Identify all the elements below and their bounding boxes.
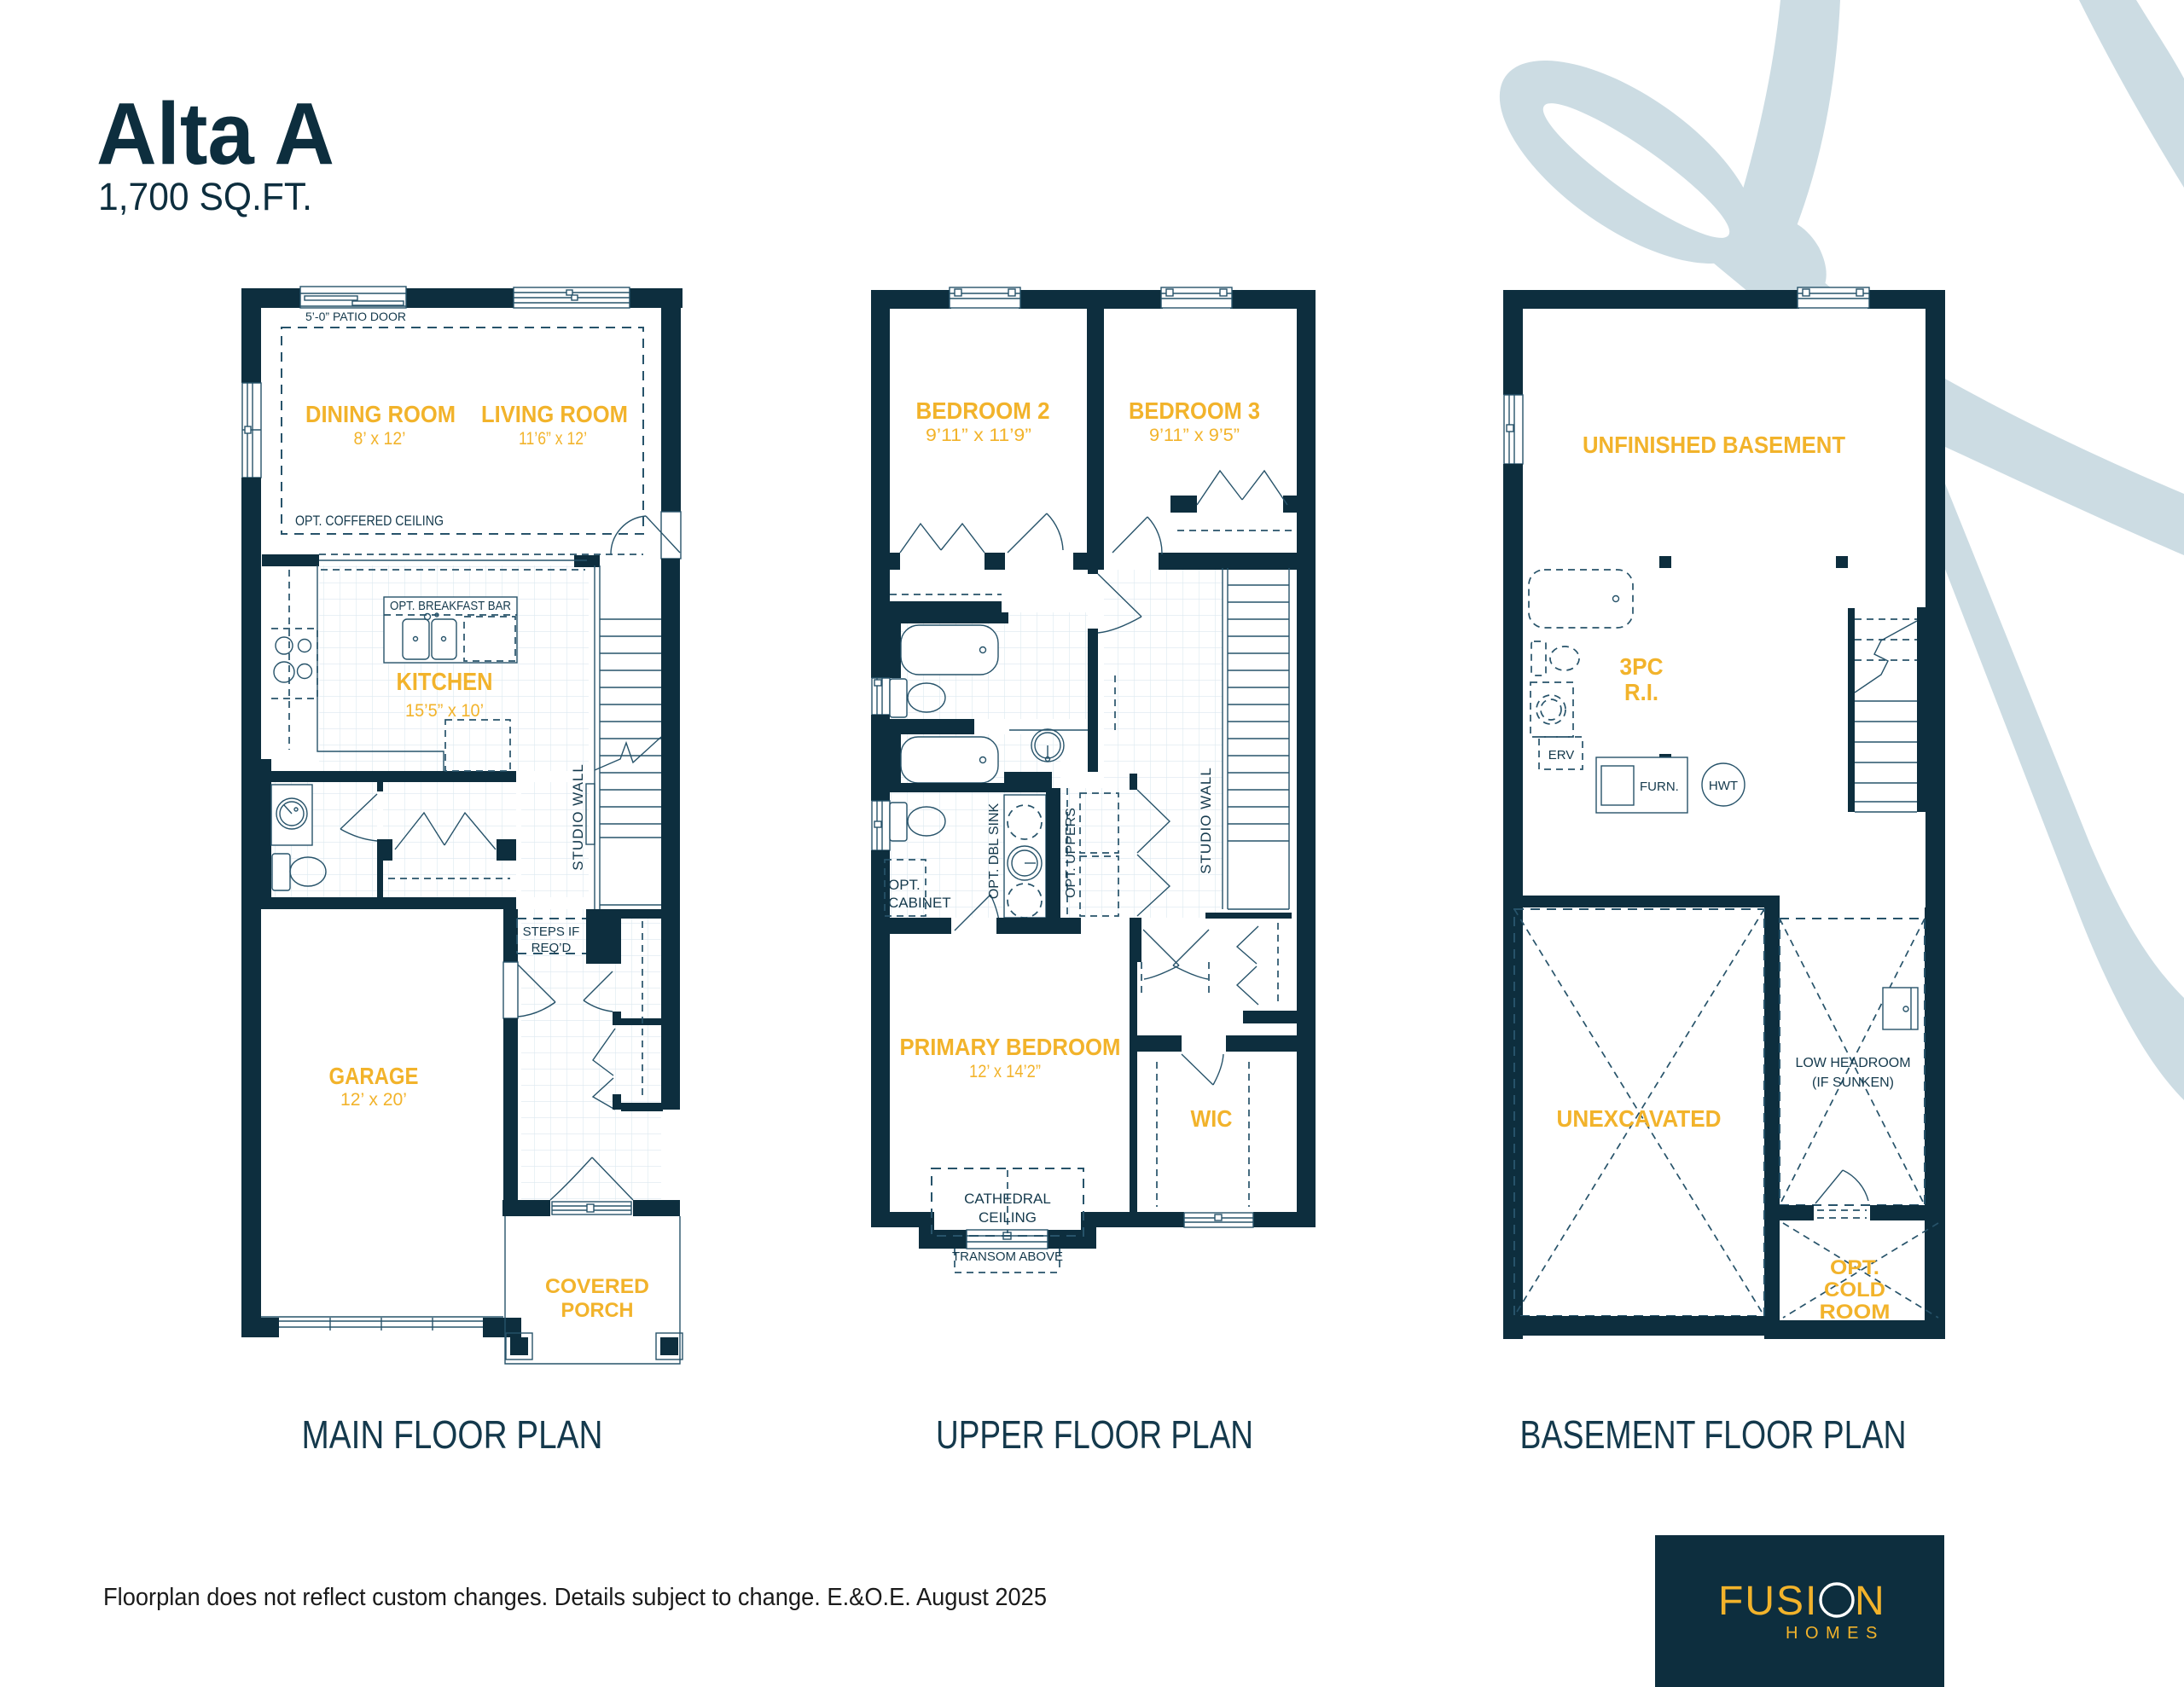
svg-text:CEILING: CEILING: [979, 1209, 1037, 1226]
svg-text:FUSI: FUSI: [1718, 1579, 1818, 1624]
svg-text:FURN.: FURN.: [1640, 780, 1679, 794]
svg-text:OPT. COFFERED CEILING: OPT. COFFERED CEILING: [295, 513, 444, 529]
svg-text:OPT. UPPERS: OPT. UPPERS: [1064, 808, 1078, 898]
svg-text:(IF SUNKEN): (IF SUNKEN): [1812, 1075, 1894, 1090]
svg-text:11’6” x 12’: 11’6” x 12’: [519, 429, 587, 449]
svg-text:STUDIO WALL: STUDIO WALL: [1198, 767, 1214, 874]
svg-text:12’ x 20’: 12’ x 20’: [340, 1090, 407, 1110]
svg-text:LIVING ROOM: LIVING ROOM: [481, 401, 628, 427]
svg-text:COLD: COLD: [1824, 1278, 1885, 1301]
svg-text:OPT.: OPT.: [888, 877, 921, 893]
svg-text:TRANSOM ABOVE: TRANSOM ABOVE: [952, 1249, 1063, 1264]
svg-text:ROOM: ROOM: [1820, 1301, 1891, 1324]
svg-text:CATHEDRAL: CATHEDRAL: [964, 1191, 1051, 1207]
svg-text:BEDROOM 2: BEDROOM 2: [916, 397, 1050, 424]
svg-text:GARAGE: GARAGE: [329, 1063, 419, 1089]
svg-text:BEDROOM 3: BEDROOM 3: [1129, 397, 1260, 424]
svg-text:STEPS IF: STEPS IF: [523, 925, 580, 939]
svg-text:CABINET: CABINET: [888, 895, 951, 911]
svg-text:N: N: [1855, 1579, 1885, 1624]
svg-text:OPT. BREAKFAST BAR: OPT. BREAKFAST BAR: [390, 599, 511, 613]
svg-text:Floorplan does not reflect cus: Floorplan does not reflect custom change…: [103, 1584, 1047, 1611]
svg-text:OPT.: OPT.: [1830, 1256, 1879, 1279]
svg-text:UPPER FLOOR PLAN: UPPER FLOOR PLAN: [936, 1412, 1253, 1457]
svg-text:9’11” x 9’5”: 9’11” x 9’5”: [1149, 426, 1240, 445]
svg-text:ERV: ERV: [1548, 748, 1575, 762]
svg-text:15’5” x 10’: 15’5” x 10’: [405, 701, 484, 721]
svg-text:COVERED: COVERED: [545, 1275, 649, 1298]
svg-text:5’-0” PATIO DOOR: 5’-0” PATIO DOOR: [305, 310, 406, 323]
svg-text:DINING ROOM: DINING ROOM: [305, 401, 456, 427]
svg-text:STUDIO WALL: STUDIO WALL: [570, 763, 586, 871]
svg-text:PORCH: PORCH: [561, 1299, 634, 1322]
svg-text:PRIMARY BEDROOM: PRIMARY BEDROOM: [900, 1034, 1121, 1060]
svg-text:3PC: 3PC: [1620, 653, 1664, 680]
svg-text:UNFINISHED BASEMENT: UNFINISHED BASEMENT: [1583, 432, 1845, 458]
svg-text:1,700 SQ.FT.: 1,700 SQ.FT.: [98, 175, 312, 218]
svg-text:LOW HEADROOM: LOW HEADROOM: [1795, 1056, 1910, 1070]
svg-text:R.I.: R.I.: [1624, 679, 1658, 705]
svg-text:12’ x 14’2”: 12’ x 14’2”: [969, 1062, 1041, 1081]
svg-text:WIC: WIC: [1191, 1105, 1233, 1132]
svg-text:HOMES: HOMES: [1786, 1624, 1885, 1643]
svg-text:HWT: HWT: [1709, 779, 1738, 793]
svg-text:KITCHEN: KITCHEN: [397, 669, 493, 696]
svg-text:OPT. DBL SINK: OPT. DBL SINK: [987, 803, 1002, 900]
svg-text:UNEXCAVATED: UNEXCAVATED: [1557, 1105, 1722, 1132]
svg-text:REQ’D: REQ’D: [531, 941, 572, 955]
svg-text:Alta A: Alta A: [96, 84, 334, 183]
svg-text:MAIN FLOOR PLAN: MAIN FLOOR PLAN: [302, 1412, 603, 1457]
svg-text:9’11” x 11’9”: 9’11” x 11’9”: [926, 426, 1031, 445]
svg-text:8’ x 12’: 8’ x 12’: [354, 429, 406, 449]
svg-text:BASEMENT FLOOR PLAN: BASEMENT FLOOR PLAN: [1520, 1412, 1907, 1457]
